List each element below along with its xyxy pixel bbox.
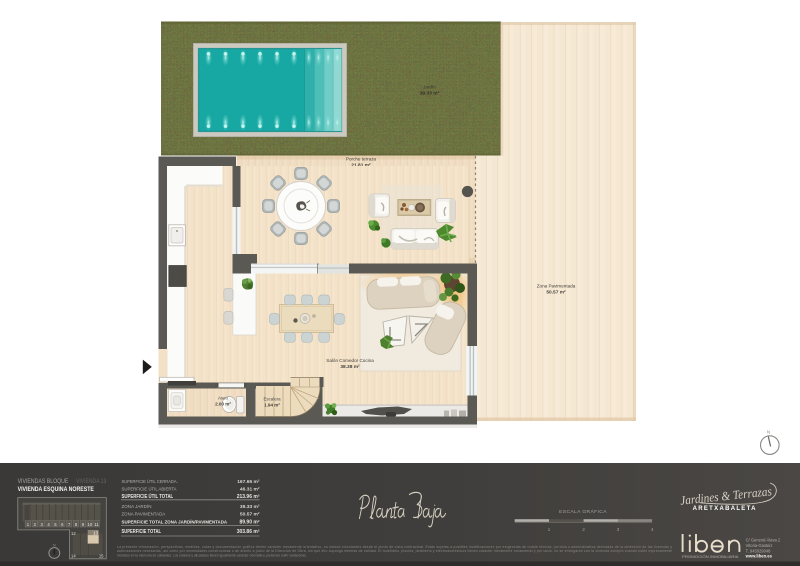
- svg-text:1.94 m²: 1.94 m²: [264, 402, 280, 407]
- svg-text:13: 13: [93, 531, 98, 536]
- svg-text:2.00 m²: 2.00 m²: [215, 401, 231, 406]
- svg-text:N: N: [767, 430, 770, 435]
- svg-text:N: N: [53, 544, 56, 548]
- svg-text:SUPERFICIE TOTAL ZONA JARDÍN/P: SUPERFICIE TOTAL ZONA JARDÍN/PAVIMENTADA: [122, 517, 228, 524]
- svg-text:39.33 m²: 39.33 m²: [420, 91, 440, 97]
- svg-text:Escalera: Escalera: [263, 397, 281, 402]
- svg-text:Jardín: Jardín: [423, 85, 436, 90]
- svg-text:Zona Pavimentada: Zona Pavimentada: [537, 284, 576, 289]
- svg-text:Vitoria-Gasteiz: Vitoria-Gasteiz: [746, 543, 773, 548]
- svg-text:SUPERFICIE TOTAL: SUPERFICIE TOTAL: [122, 529, 162, 535]
- svg-text:VIVIENDAS BLOQUE: VIVIENDAS BLOQUE: [18, 478, 69, 485]
- svg-text:ZONA PAVIMENTADA: ZONA PAVIMENTADA: [122, 512, 166, 518]
- svg-text:213.96 m²: 213.96 m²: [237, 494, 260, 500]
- svg-text:12: 12: [71, 531, 76, 536]
- svg-text:10: 10: [87, 522, 92, 527]
- svg-text:VIVIENDA 13: VIVIENDA 13: [76, 478, 107, 485]
- svg-text:ZONA JARDÍN: ZONA JARDÍN: [122, 503, 152, 510]
- svg-text:SUPERFICIE ÚTIL ABIERTA: SUPERFICIE ÚTIL ABIERTA: [122, 486, 178, 493]
- svg-text:ARETXABALETA: ARETXABALETA: [693, 506, 757, 512]
- svg-text:www.liben.es: www.liben.es: [745, 554, 773, 559]
- svg-text:C/ General Álava 2: C/ General Álava 2: [746, 537, 781, 542]
- svg-text:VIVIENDA ESQUINA NORESTE: VIVIENDA ESQUINA NORESTE: [18, 486, 95, 493]
- svg-text:50.57 m²: 50.57 m²: [546, 290, 566, 296]
- svg-text:1: 1: [548, 527, 551, 533]
- svg-text:39.33 m²: 39.33 m²: [240, 504, 260, 510]
- svg-text:Porche terraza: Porche terraza: [346, 157, 377, 162]
- svg-text:167.65 m²: 167.65 m²: [237, 479, 260, 485]
- svg-text:14: 14: [71, 554, 76, 559]
- svg-text:SUPERFICIE ÚTIL CERRADA.: SUPERFICIE ÚTIL CERRADA.: [122, 478, 178, 485]
- svg-text:Aseo: Aseo: [218, 396, 229, 401]
- svg-text:46.31 m²: 46.31 m²: [240, 487, 260, 493]
- svg-text:SUPERFICIE ÚTIL TOTAL: SUPERFICIE ÚTIL TOTAL: [122, 493, 174, 500]
- svg-text:38.38 m²: 38.38 m²: [340, 364, 360, 370]
- svg-text:2: 2: [582, 527, 585, 533]
- svg-text:PROMOCIÓN INMOBILIARIA: PROMOCIÓN INMOBILIARIA: [682, 554, 739, 559]
- svg-text:50.57 m²: 50.57 m²: [240, 512, 260, 518]
- svg-text:303.86 m²: 303.86 m²: [237, 529, 260, 535]
- svg-text:89.90 m²: 89.90 m²: [239, 519, 259, 525]
- svg-text:3: 3: [617, 527, 620, 533]
- svg-text:11: 11: [94, 522, 99, 527]
- svg-text:incluidos en la memoria de cal: incluidos en la memoria de calidades. Lo…: [117, 553, 307, 557]
- svg-text:4: 4: [651, 527, 654, 533]
- svg-text:15: 15: [99, 554, 104, 559]
- svg-text:ESCALA GRÁFICA: ESCALA GRÁFICA: [559, 508, 607, 515]
- svg-text:Salón Comedor Cocina: Salón Comedor Cocina: [326, 358, 374, 363]
